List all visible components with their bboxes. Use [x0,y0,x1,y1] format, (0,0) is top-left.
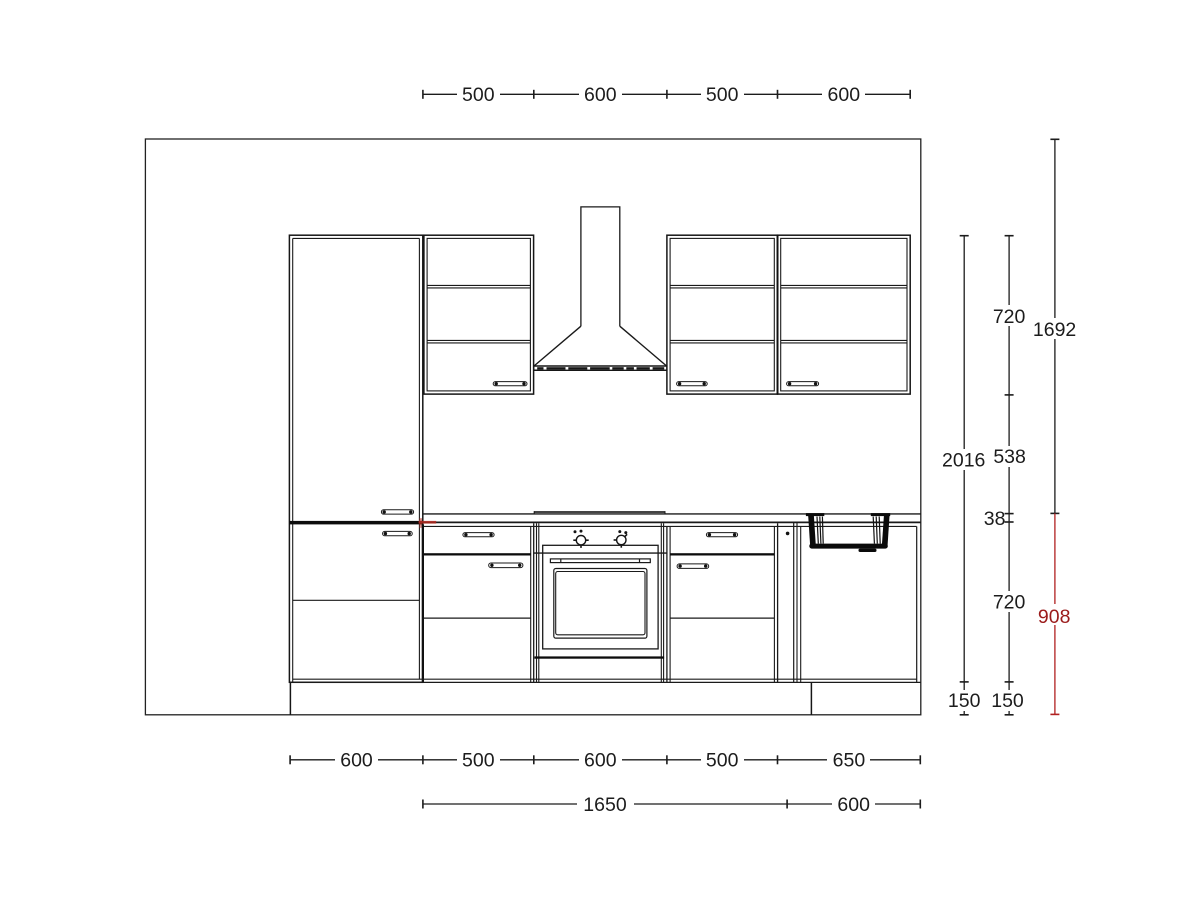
svg-text:500: 500 [462,750,495,772]
svg-text:600: 600 [828,84,861,106]
svg-text:500: 500 [462,84,495,106]
svg-text:150: 150 [991,690,1024,712]
svg-text:600: 600 [837,794,870,816]
svg-text:600: 600 [584,750,617,772]
svg-text:720: 720 [993,592,1026,614]
svg-text:908: 908 [1038,606,1071,628]
svg-text:720: 720 [993,306,1026,328]
svg-text:1692: 1692 [1033,319,1076,341]
svg-text:500: 500 [706,750,739,772]
svg-text:38: 38 [984,508,1006,530]
svg-text:1650: 1650 [583,794,627,816]
svg-text:2016: 2016 [942,450,985,472]
svg-text:600: 600 [340,750,373,772]
svg-text:600: 600 [584,84,617,106]
svg-text:150: 150 [948,690,981,712]
svg-text:538: 538 [993,446,1026,468]
svg-text:650: 650 [833,750,866,772]
svg-text:500: 500 [706,84,739,106]
